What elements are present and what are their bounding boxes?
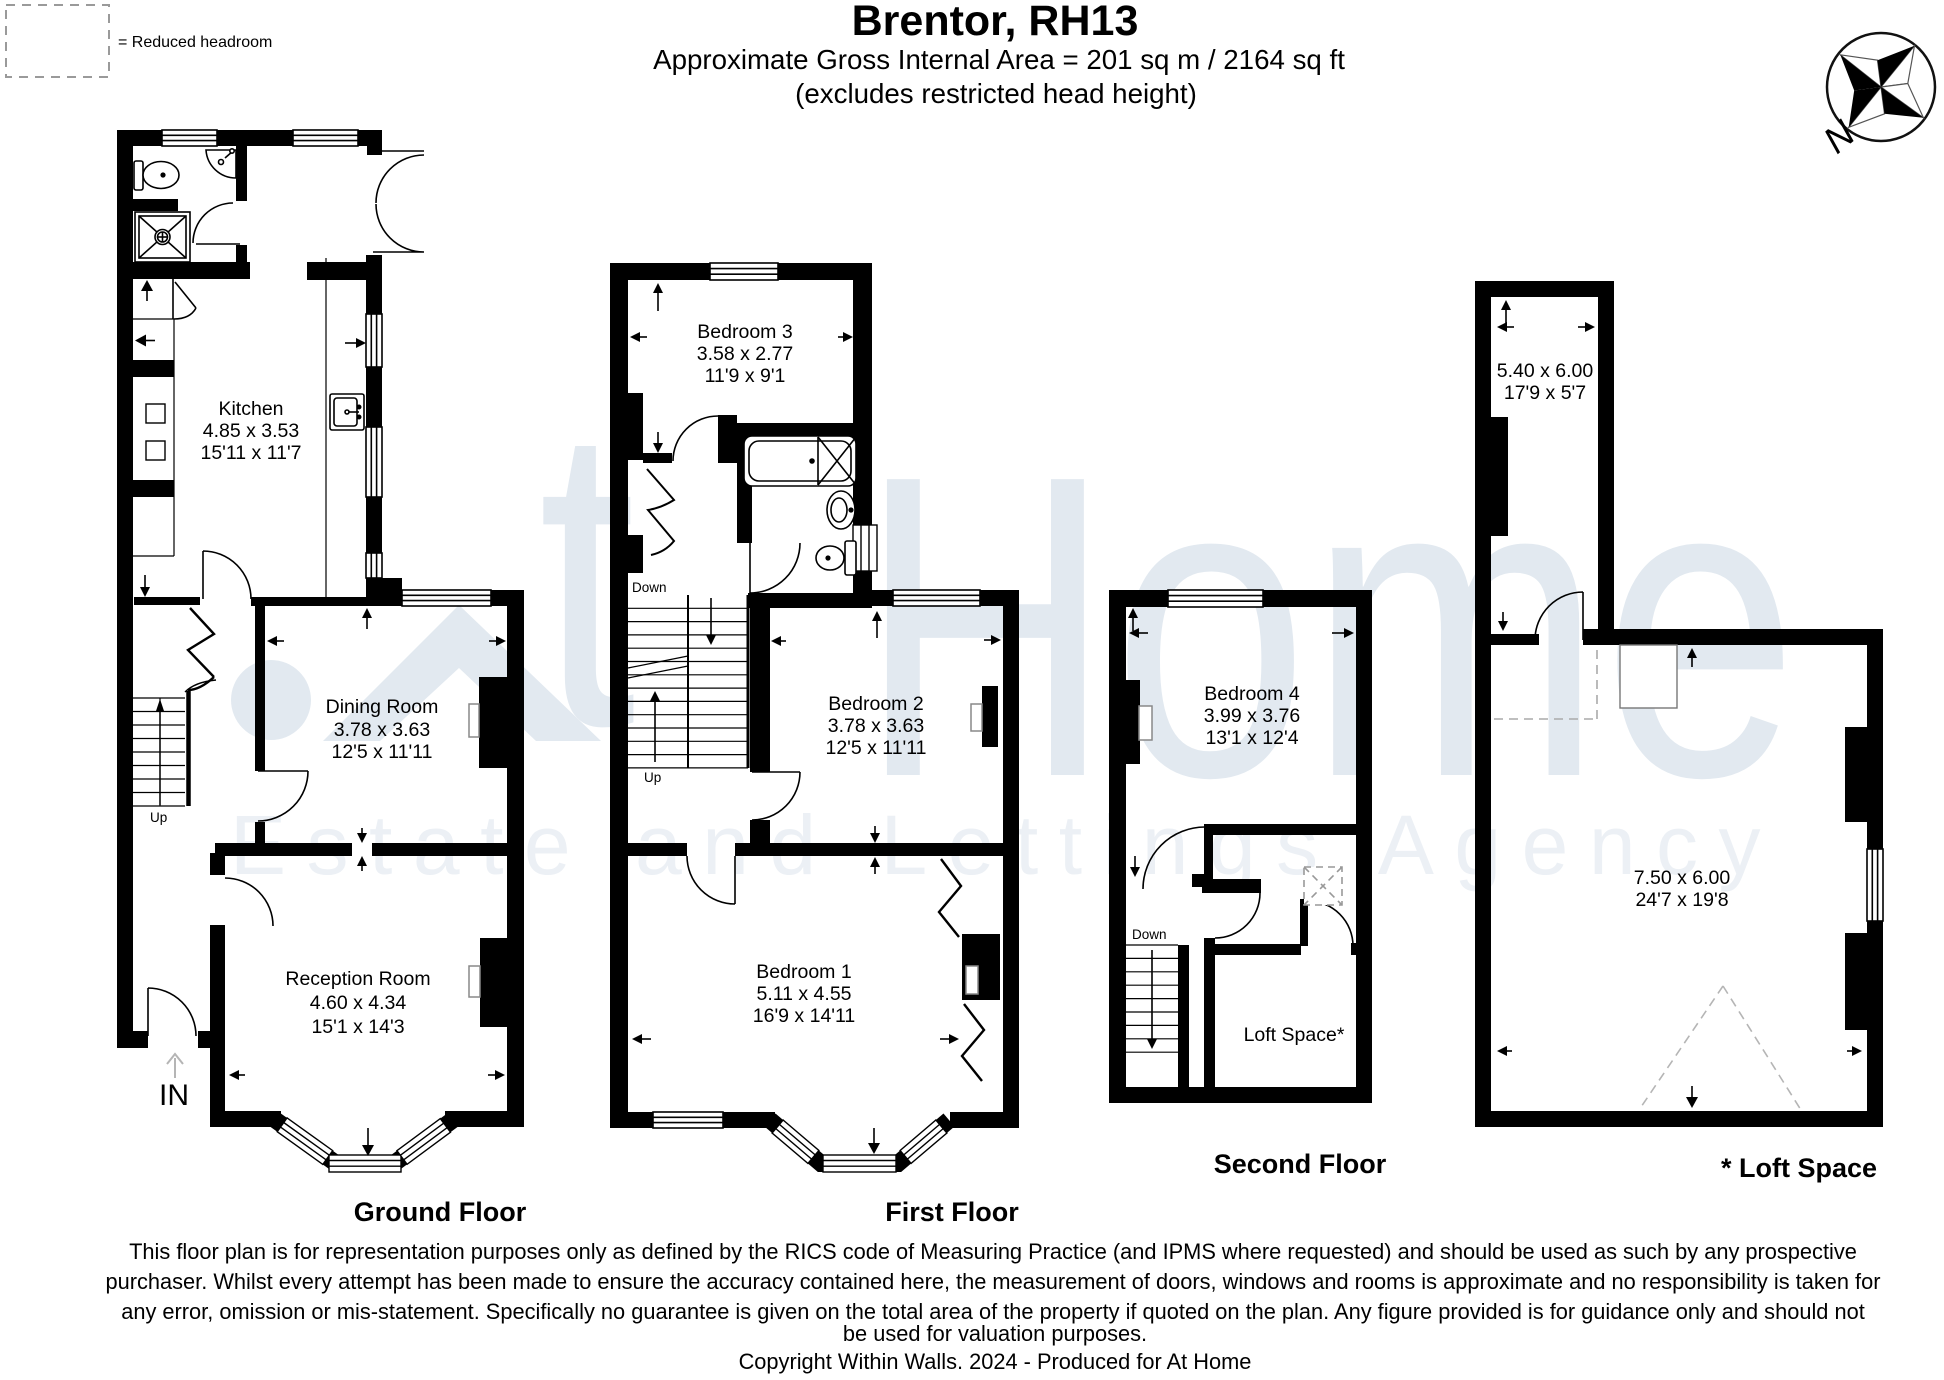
svg-text:Home: Home bbox=[858, 387, 1799, 867]
svg-text:Bedroom 3: Bedroom 3 bbox=[697, 321, 792, 343]
svg-text:Brentor, RH13: Brentor, RH13 bbox=[852, 0, 1139, 45]
svg-text:Up: Up bbox=[644, 770, 661, 785]
svg-text:3.78 x 3.63: 3.78 x 3.63 bbox=[828, 715, 925, 737]
svg-text:12'5 x 11'11: 12'5 x 11'11 bbox=[331, 741, 432, 763]
svg-text:3.58 x 2.77: 3.58 x 2.77 bbox=[697, 343, 794, 365]
svg-text:Ground Floor: Ground Floor bbox=[354, 1197, 527, 1227]
svg-text:4.85 x 3.53: 4.85 x 3.53 bbox=[203, 420, 300, 442]
svg-text:First Floor: First Floor bbox=[885, 1197, 1019, 1227]
svg-text:Reception Room: Reception Room bbox=[285, 968, 430, 990]
svg-text:Second Floor: Second Floor bbox=[1214, 1149, 1387, 1179]
svg-text:be used for valuation purposes: be used for valuation purposes. bbox=[843, 1321, 1147, 1346]
svg-text:Down: Down bbox=[632, 580, 667, 595]
svg-text:purchaser. Whilst every attemp: purchaser. Whilst every attempt has been… bbox=[106, 1269, 1881, 1294]
svg-text:17'9 x 5'7: 17'9 x 5'7 bbox=[1504, 382, 1586, 404]
svg-text:Dining Room: Dining Room bbox=[326, 696, 439, 718]
svg-text:* Loft Space: * Loft Space bbox=[1721, 1153, 1877, 1183]
svg-text:Down: Down bbox=[1132, 927, 1167, 942]
svg-text:4.60 x 4.34: 4.60 x 4.34 bbox=[310, 992, 407, 1014]
svg-text:Up: Up bbox=[150, 810, 167, 825]
svg-text:IN: IN bbox=[159, 1079, 189, 1112]
svg-text:7.50 x 6.00: 7.50 x 6.00 bbox=[1634, 867, 1731, 889]
svg-text:= Reduced headroom: = Reduced headroom bbox=[118, 34, 272, 51]
svg-text:5.40 x 6.00: 5.40 x 6.00 bbox=[1497, 360, 1594, 382]
svg-text:(excludes restricted head heig: (excludes restricted head height) bbox=[795, 78, 1197, 109]
svg-text:24'7 x 19'8: 24'7 x 19'8 bbox=[1635, 889, 1728, 911]
svg-text:3.78 x 3.63: 3.78 x 3.63 bbox=[334, 719, 431, 741]
svg-text:Copyright Within Walls. 2024 -: Copyright Within Walls. 2024 - Produced … bbox=[739, 1349, 1252, 1374]
svg-text:Kitchen: Kitchen bbox=[218, 398, 283, 420]
svg-text:Bedroom 2: Bedroom 2 bbox=[828, 693, 923, 715]
svg-text:Approximate Gross Internal Are: Approximate Gross Internal Area = 201 sq… bbox=[653, 44, 1345, 75]
svg-text:15'1 x 14'3: 15'1 x 14'3 bbox=[311, 1016, 404, 1038]
svg-text:This floor plan is for represe: This floor plan is for representation pu… bbox=[129, 1239, 1857, 1264]
svg-text:16'9 x 14'11: 16'9 x 14'11 bbox=[753, 1005, 856, 1027]
svg-text:15'11 x 11'7: 15'11 x 11'7 bbox=[200, 442, 301, 464]
svg-text:12'5 x 11'11: 12'5 x 11'11 bbox=[825, 737, 926, 759]
svg-text:13'1 x 12'4: 13'1 x 12'4 bbox=[1205, 727, 1298, 749]
svg-text:3.99 x 3.76: 3.99 x 3.76 bbox=[1204, 705, 1301, 727]
svg-text:Bedroom 1: Bedroom 1 bbox=[756, 961, 851, 983]
svg-text:Loft Space*: Loft Space* bbox=[1244, 1024, 1345, 1046]
svg-text:Bedroom 4: Bedroom 4 bbox=[1204, 683, 1300, 705]
svg-text:11'9 x 9'1: 11'9 x 9'1 bbox=[705, 365, 786, 387]
svg-text:5.11 x 4.55: 5.11 x 4.55 bbox=[756, 983, 851, 1005]
